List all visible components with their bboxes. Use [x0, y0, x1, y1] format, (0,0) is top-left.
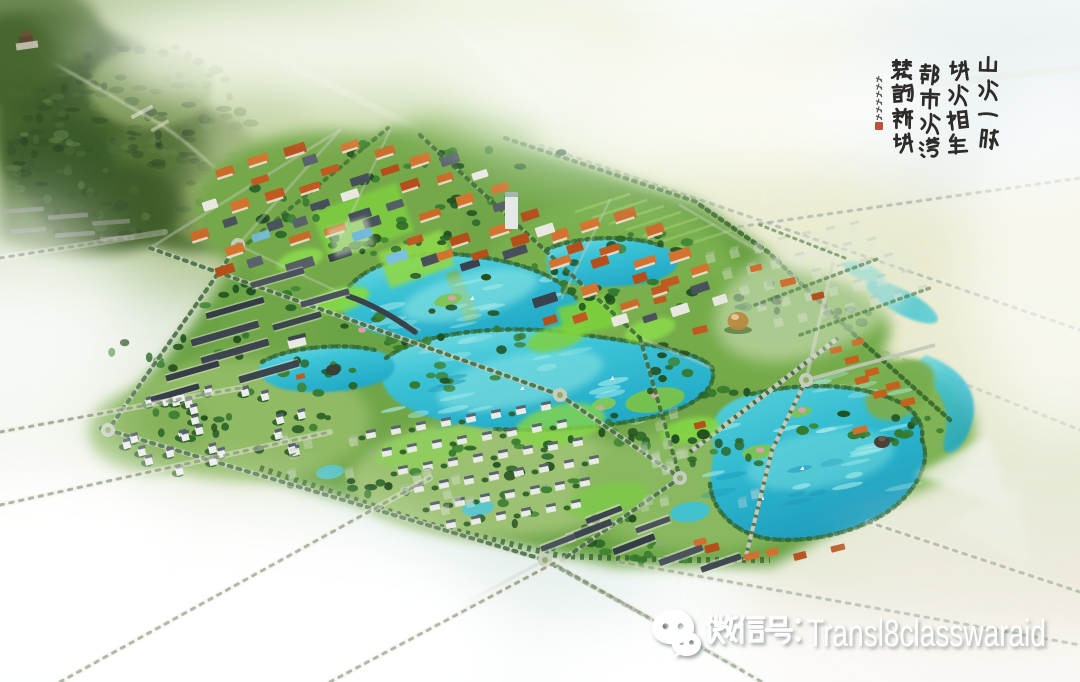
svg-text:Transl8classwaraid: Transl8classwaraid	[807, 613, 1046, 655]
